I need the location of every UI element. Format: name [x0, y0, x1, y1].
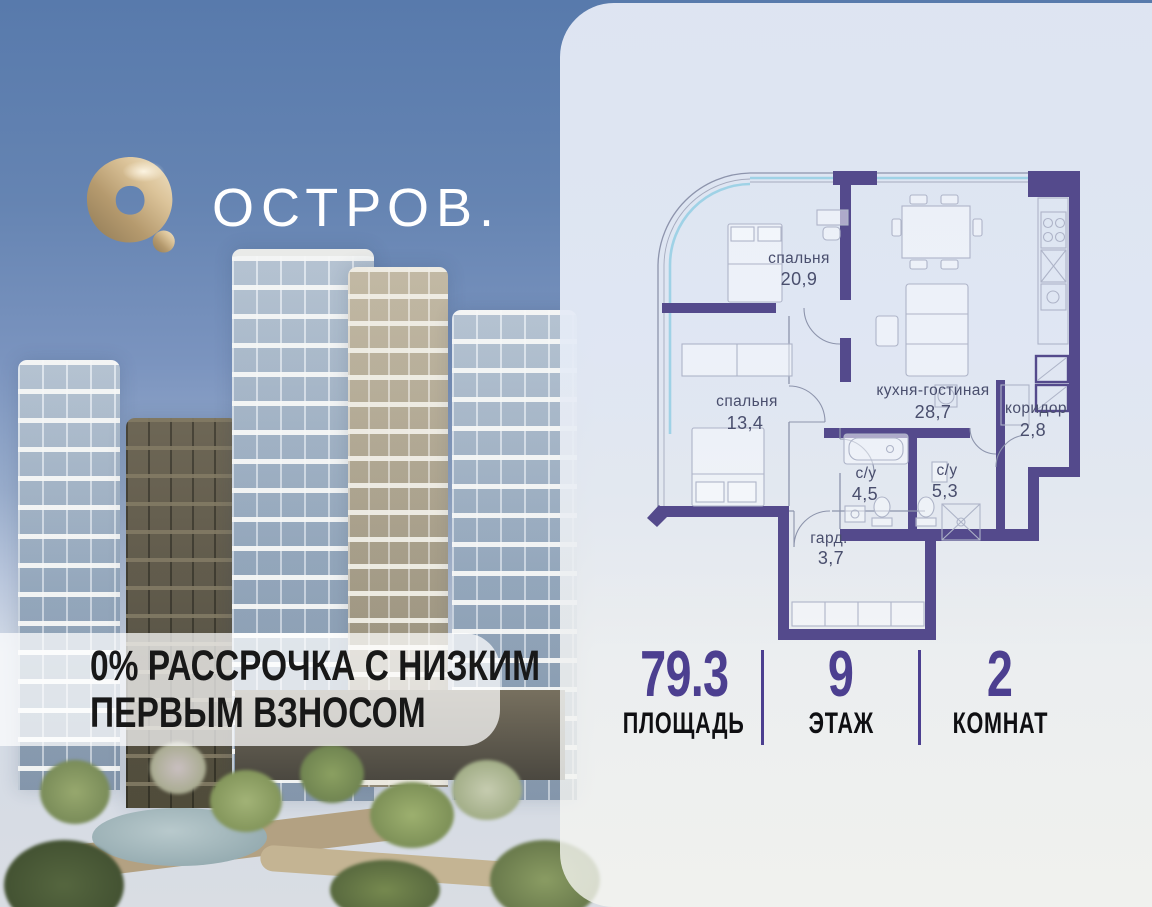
tree	[40, 760, 110, 824]
stats-row: 79.3 ПЛОЩАДЬ 9 ЭТАЖ 2 КОМНАТ	[560, 645, 1152, 757]
floorplan: спальня 20,9 кухня-гостиная 28,7 коридор…	[644, 166, 1096, 653]
apartment-card: спальня 20,9 кухня-гостиная 28,7 коридор…	[560, 3, 1152, 907]
room-label: спальня	[716, 393, 778, 410]
gold-torus-icon	[86, 156, 182, 256]
rooms-value: 2	[987, 645, 1012, 703]
room-label: с/у	[936, 462, 957, 479]
brand-name: ОСТРОВ.	[212, 177, 501, 239]
room-area: 28,7	[915, 402, 952, 422]
room-area: 20,9	[781, 269, 818, 289]
room-label: коридор	[1005, 400, 1067, 417]
tree	[150, 742, 206, 794]
stat-rooms: 2 КОМНАТ	[915, 645, 1085, 739]
room-label: спальня	[768, 250, 830, 267]
tree	[452, 760, 522, 820]
room-area: 4,5	[852, 484, 878, 504]
tree	[370, 782, 454, 848]
advert-card: ОСТРОВ. 0% РАССРОЧКА С НИЗКИМ ПЕРВЫМ ВЗН…	[0, 0, 1152, 907]
tree	[300, 745, 364, 803]
room-label: с/у	[855, 465, 876, 482]
floor-value: 9	[828, 645, 853, 703]
area-label: ПЛОЩАДЬ	[623, 709, 745, 739]
room-area: 13,4	[727, 413, 764, 433]
promo-banner: 0% РАССРОЧКА С НИЗКИМ ПЕРВЫМ ВЗНОСОМ	[0, 633, 500, 746]
room-area: 3,7	[818, 548, 844, 568]
room-label: гард.	[810, 530, 848, 547]
floor-label: ЭТАЖ	[808, 709, 873, 739]
stat-area: 79.3 ПЛОЩАДЬ	[599, 645, 769, 739]
brand-logo: ОСТРОВ.	[86, 156, 501, 256]
promo-line-2: ПЕРВЫМ ВЗНОСОМ	[90, 690, 410, 737]
room-area: 5,3	[932, 481, 958, 501]
promo-line-1: 0% РАССРОЧКА С НИЗКИМ	[90, 643, 410, 690]
area-value: 79.3	[640, 645, 728, 703]
room-area: 2,8	[1020, 420, 1046, 440]
rooms-label: КОМНАТ	[952, 709, 1048, 739]
tree	[210, 770, 282, 832]
stat-floor: 9 ЭТАЖ	[756, 645, 926, 739]
room-label: кухня-гостиная	[876, 382, 989, 399]
